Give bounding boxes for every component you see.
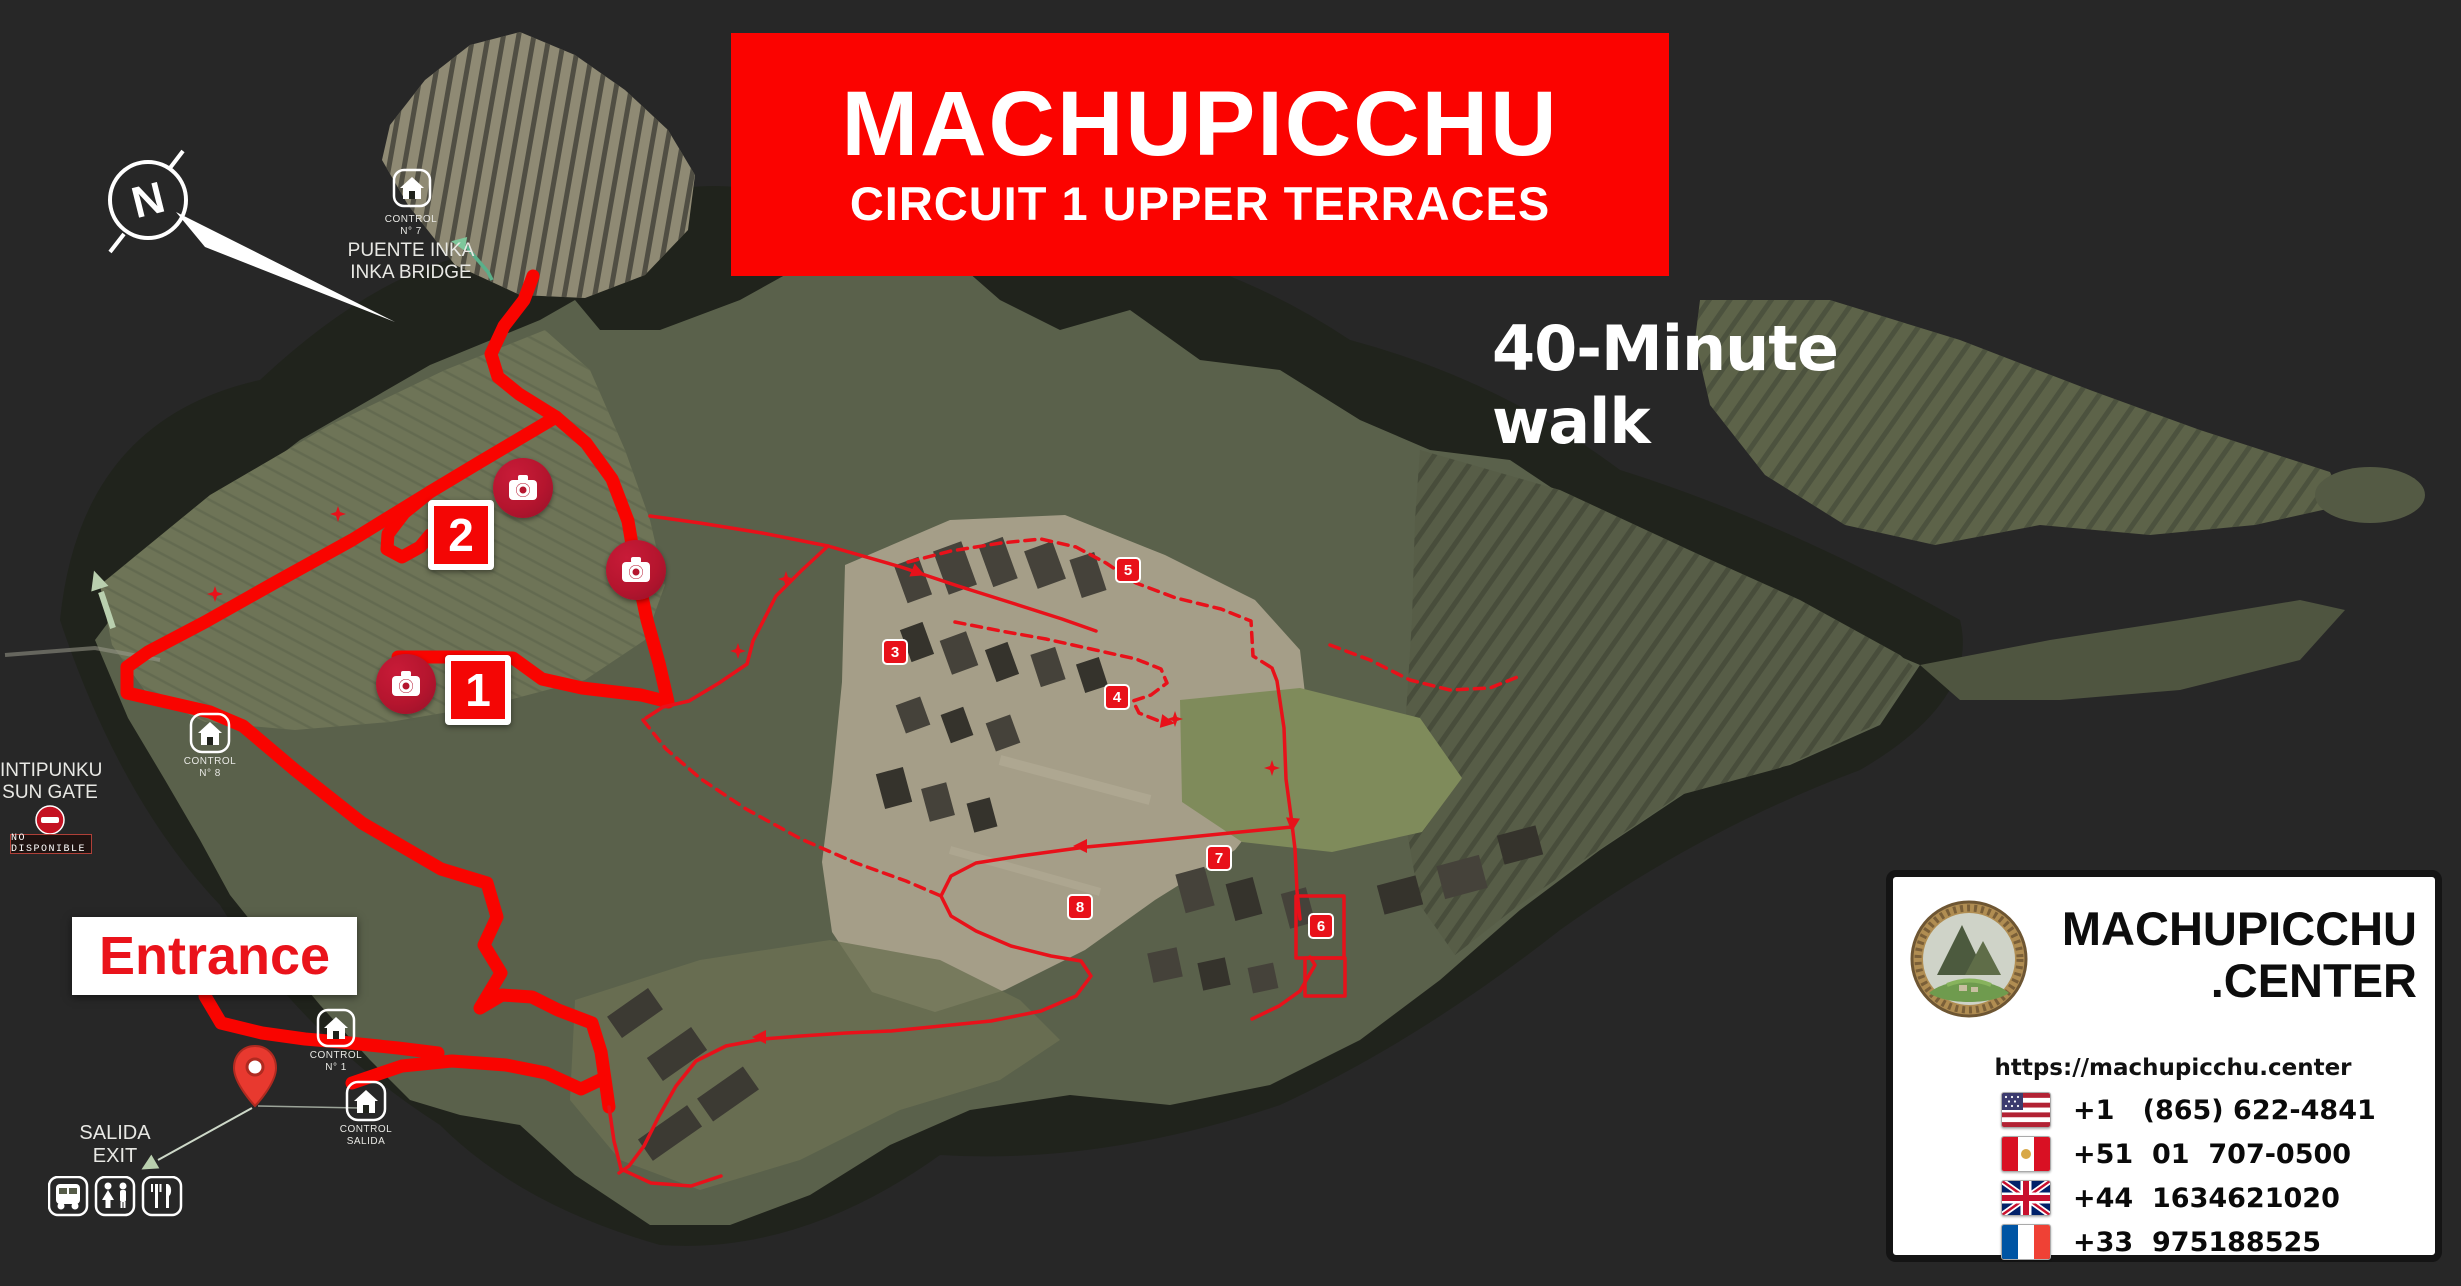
inka-bridge-label: INKA BRIDGE	[320, 262, 502, 284]
machupicchu-circuit-map: N MACHUPICCHU CIRCUIT 1 UPPER TERRACES 4…	[0, 0, 2461, 1286]
point-badge-4[interactable]: 4	[1104, 684, 1130, 710]
sun-gate-label-group: INTIPUNKU SUN GATE	[0, 760, 100, 843]
control7-label-line2: N° 7	[320, 226, 502, 238]
flag-pe-icon	[2001, 1136, 2051, 1172]
brand-line1: MACHUPICCHU	[2017, 903, 2417, 955]
phone-us: +1 (865) 622-4841	[2073, 1095, 2376, 1126]
exit-label: EXIT	[65, 1145, 165, 1168]
machupicchu-center-logo	[1907, 897, 2031, 1021]
control-house-icon[interactable]	[170, 712, 250, 756]
sun-gate-label: SUN GATE	[0, 782, 100, 804]
stop-1-number: 1	[465, 663, 491, 717]
badge-7-number: 7	[1215, 850, 1223, 867]
phone-row-gb[interactable]: +44 1634621020	[2001, 1178, 2340, 1218]
website-link[interactable]: https://machupicchu.center	[1953, 1055, 2393, 1081]
entrance-label: Entrance	[99, 925, 330, 987]
east-islet	[2315, 467, 2425, 523]
control1-label-line1: CONTROL	[296, 1050, 376, 1062]
point-badge-8[interactable]: 8	[1067, 894, 1093, 920]
map-title: MACHUPICCHU	[841, 78, 1558, 170]
control8-label-line1: CONTROL	[170, 756, 250, 768]
control-house-icon[interactable]	[326, 1080, 406, 1124]
entrance-label-box: Entrance	[72, 917, 357, 995]
control1-label-line2: N° 1	[296, 1062, 376, 1074]
stop-marker-2[interactable]: 2	[428, 500, 494, 570]
title-banner: MACHUPICCHU CIRCUIT 1 UPPER TERRACES	[731, 33, 1669, 276]
contact-card: MACHUPICCHU .CENTER https://machupicchu.…	[1886, 870, 2442, 1262]
camera-icon[interactable]	[606, 540, 666, 600]
control-salida-label-line2: SALIDA	[326, 1136, 406, 1148]
badge-3-number: 3	[891, 644, 899, 661]
brand-line2: .CENTER	[2017, 955, 2417, 1007]
badge-8-number: 8	[1076, 899, 1084, 916]
restroom-icon	[96, 1177, 134, 1215]
control8-group: CONTROL N° 8	[170, 712, 250, 780]
control-house-icon[interactable]	[296, 1008, 376, 1050]
stop-marker-1[interactable]: 1	[445, 655, 511, 725]
salida-label: SALIDA	[65, 1122, 165, 1145]
control1-group: CONTROL N° 1	[296, 1008, 376, 1074]
flag-us-icon	[2001, 1092, 2051, 1128]
control8-label-line2: N° 8	[170, 768, 250, 780]
phone-row-fr[interactable]: +33 975188525	[2001, 1222, 2321, 1262]
inka-bridge-label-group: CONTROL N° 7 PUENTE INKA INKA BRIDGE	[320, 168, 502, 284]
intipunku-label: INTIPUNKU	[0, 760, 100, 782]
control-house-icon[interactable]	[320, 168, 502, 214]
not-available-badge: NO DISPONIBLE	[10, 834, 92, 854]
dining-icon	[143, 1177, 181, 1215]
walk-duration: 40-Minute walk	[1492, 312, 1962, 458]
brand-name: MACHUPICCHU .CENTER	[2017, 903, 2417, 1006]
bus-icon	[49, 1177, 87, 1215]
badge-4-number: 4	[1113, 689, 1121, 706]
control-salida-label-line1: CONTROL	[326, 1124, 406, 1136]
phone-fr: +33 975188525	[2073, 1227, 2321, 1258]
phone-gb: +44 1634621020	[2073, 1183, 2340, 1214]
point-badge-5[interactable]: 5	[1115, 557, 1141, 583]
services-icons	[48, 1176, 188, 1220]
map-subtitle-circuit: CIRCUIT 1 UPPER TERRACES	[850, 176, 1550, 231]
control7-label-line1: CONTROL	[320, 214, 502, 226]
badge-6-number: 6	[1317, 918, 1325, 935]
point-badge-3[interactable]: 3	[882, 639, 908, 665]
point-badge-6[interactable]: 6	[1308, 913, 1334, 939]
phone-pe: +51 01 707-0500	[2073, 1139, 2351, 1170]
phone-row-us[interactable]: +1 (865) 622-4841	[2001, 1090, 2376, 1130]
camera-icon[interactable]	[376, 654, 436, 714]
control-salida-group: CONTROL SALIDA	[326, 1080, 406, 1148]
exit-label-group: SALIDA EXIT	[65, 1122, 165, 1168]
badge-5-number: 5	[1124, 562, 1132, 579]
stop-2-number: 2	[448, 508, 474, 562]
flag-gb-icon	[2001, 1180, 2051, 1216]
pin-icon[interactable]	[231, 1044, 279, 1110]
puente-inka-label: PUENTE INKA	[320, 240, 502, 262]
camera-icon[interactable]	[493, 458, 553, 518]
point-badge-7[interactable]: 7	[1206, 845, 1232, 871]
flag-fr-icon	[2001, 1224, 2051, 1260]
phone-row-pe[interactable]: +51 01 707-0500	[2001, 1134, 2351, 1174]
